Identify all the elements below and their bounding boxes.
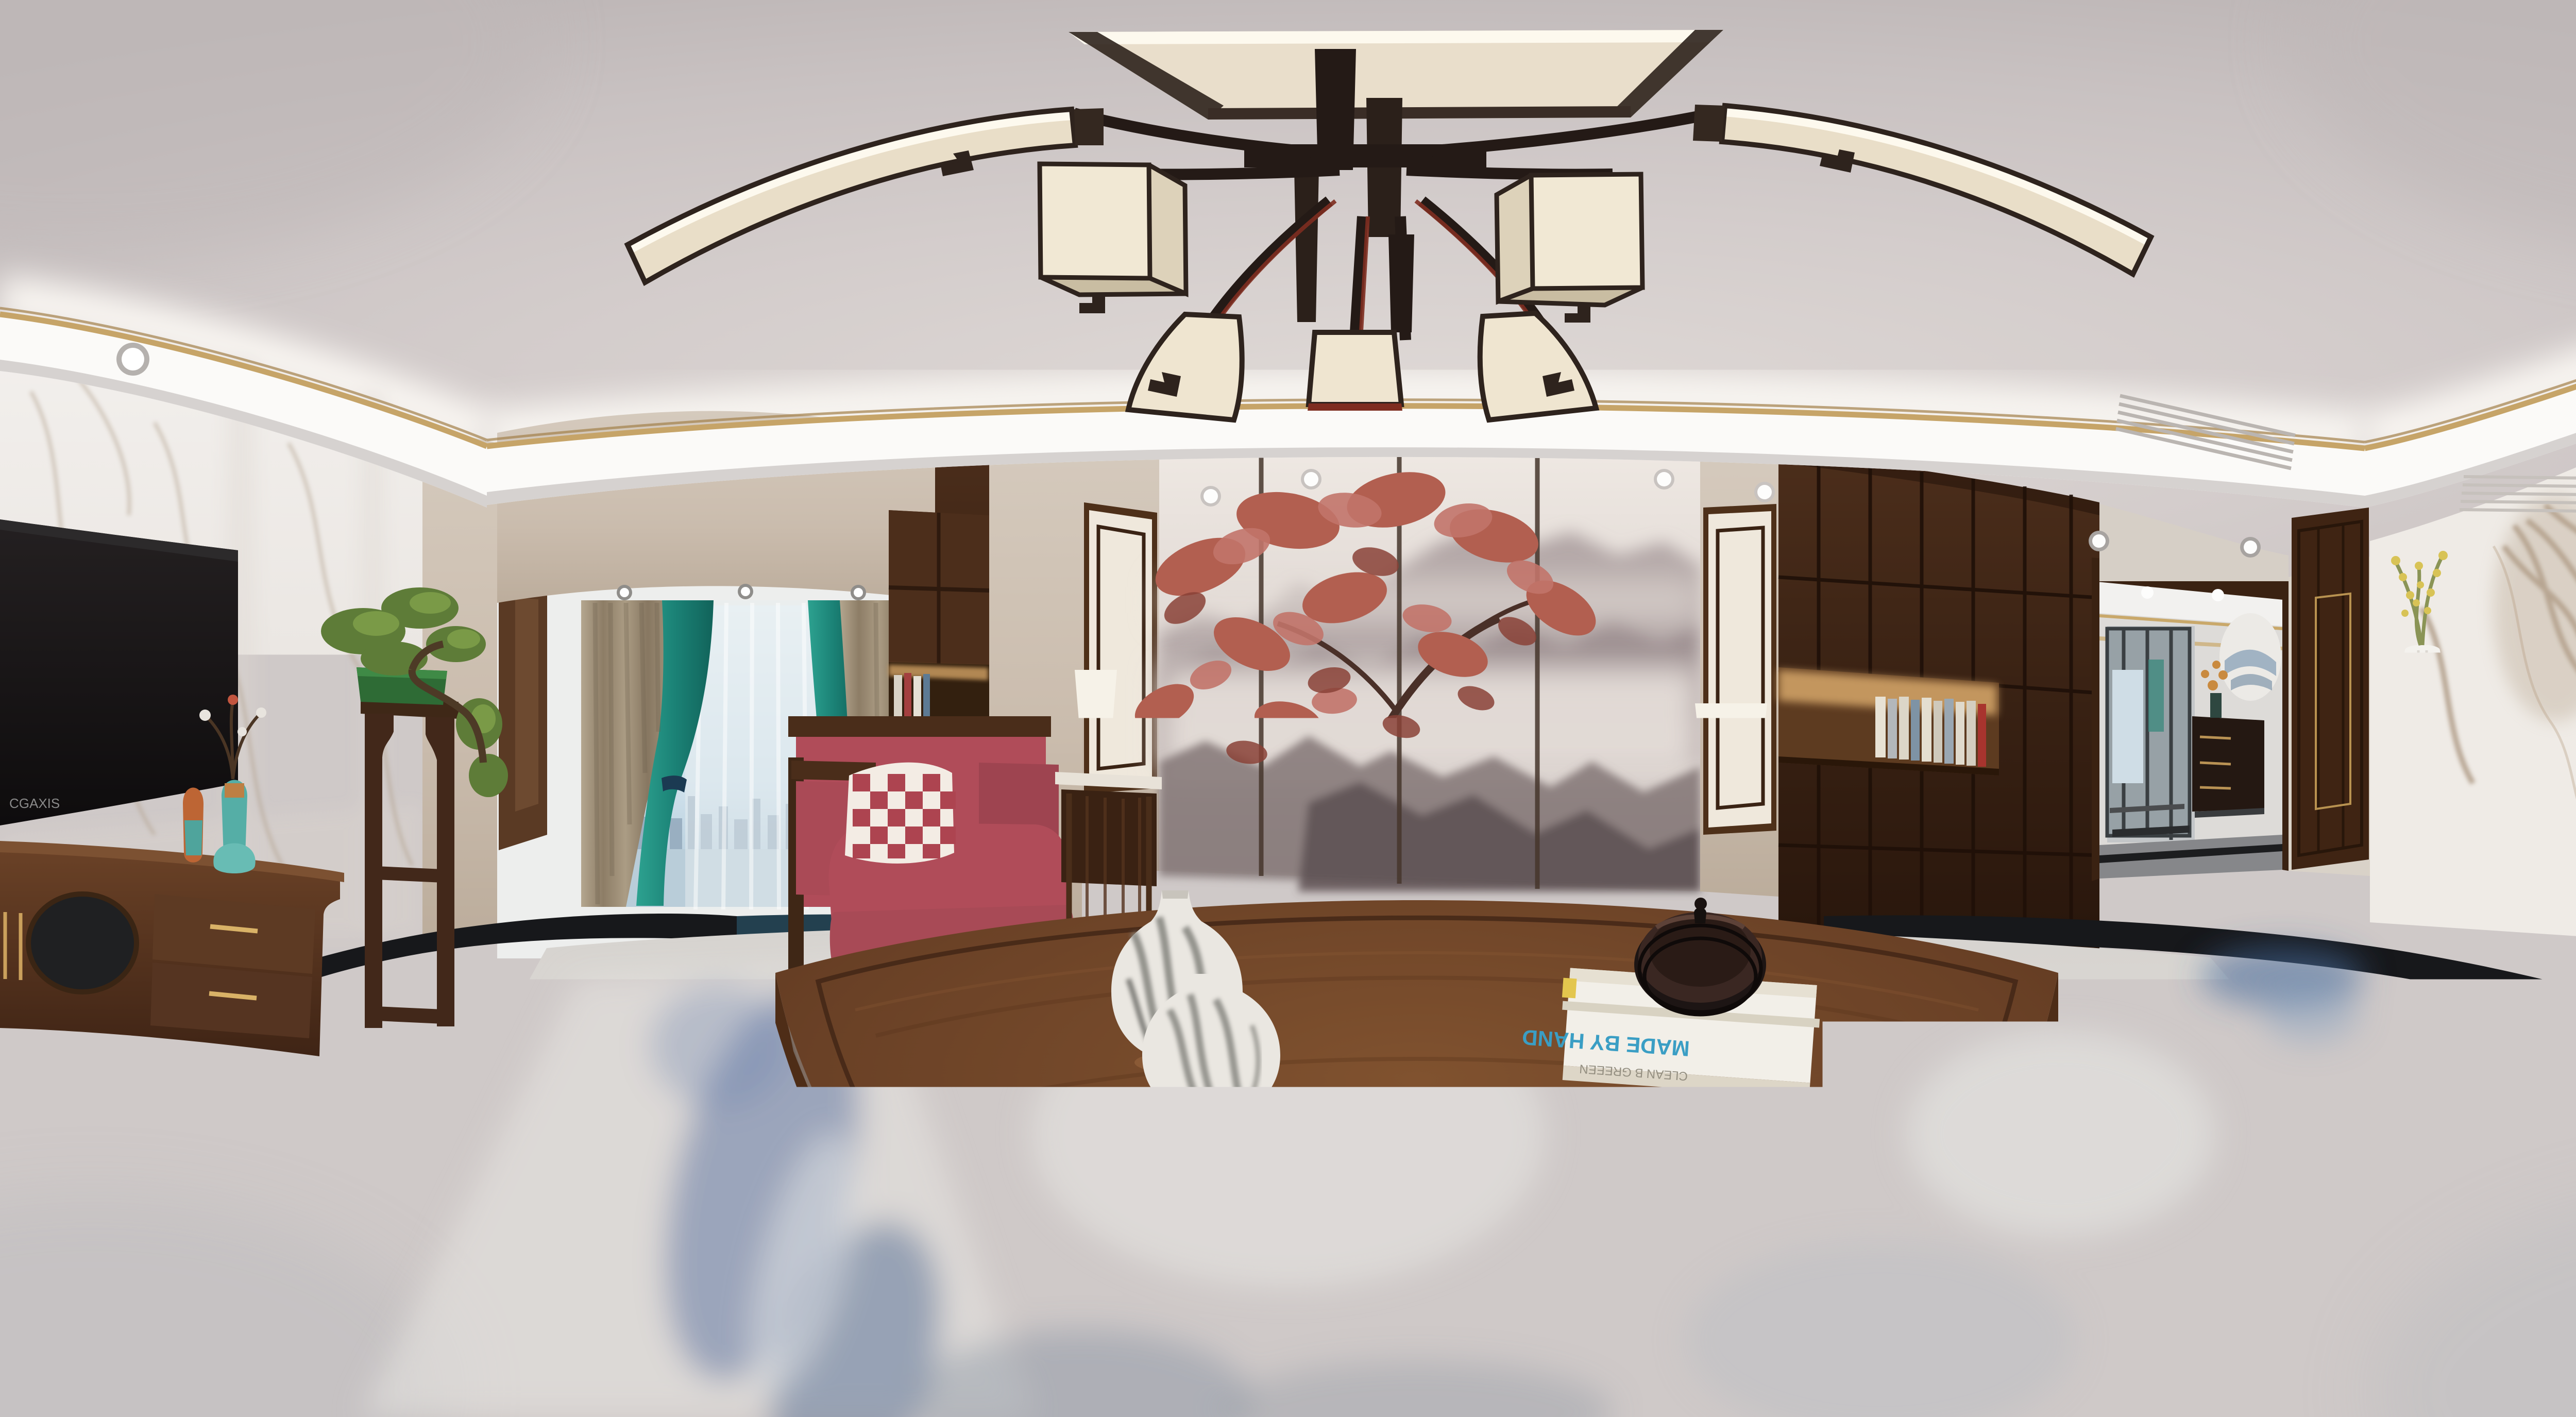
svg-text:CGAXIS: CGAXIS [9,796,60,811]
